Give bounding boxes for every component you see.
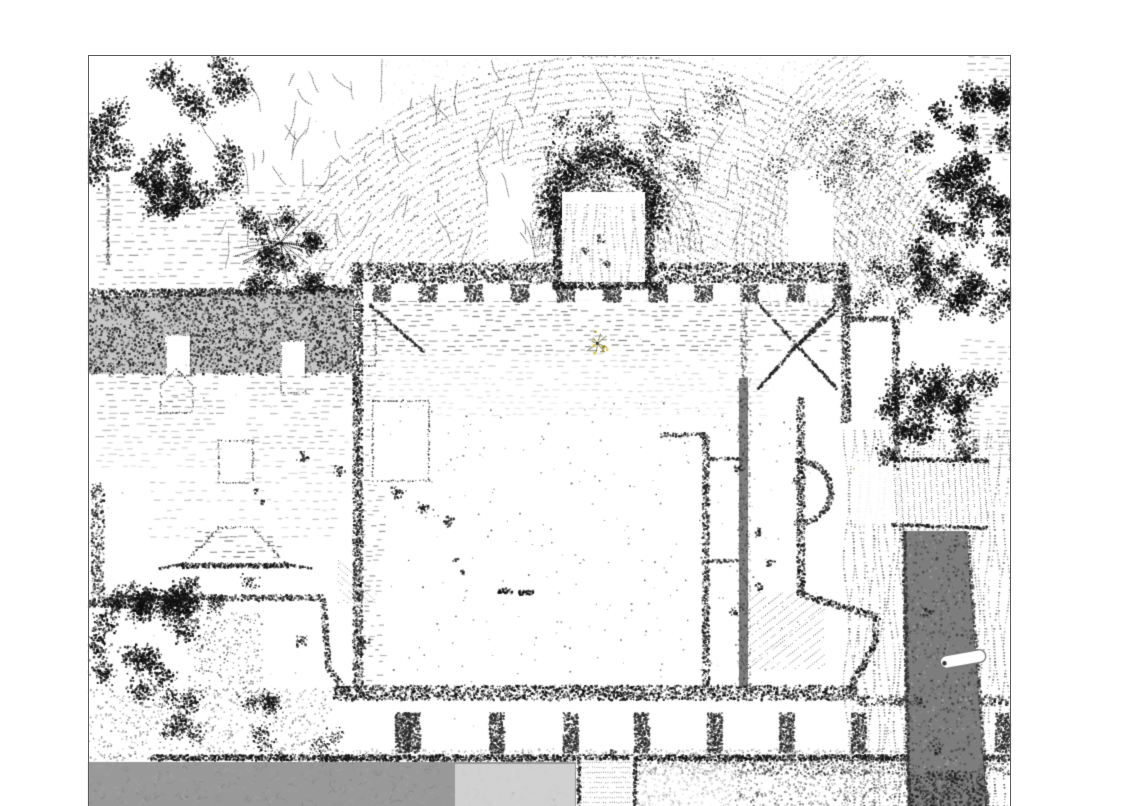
point-cloud-viewport: [0, 0, 1124, 806]
point-cloud-canvas: [0, 0, 1124, 806]
